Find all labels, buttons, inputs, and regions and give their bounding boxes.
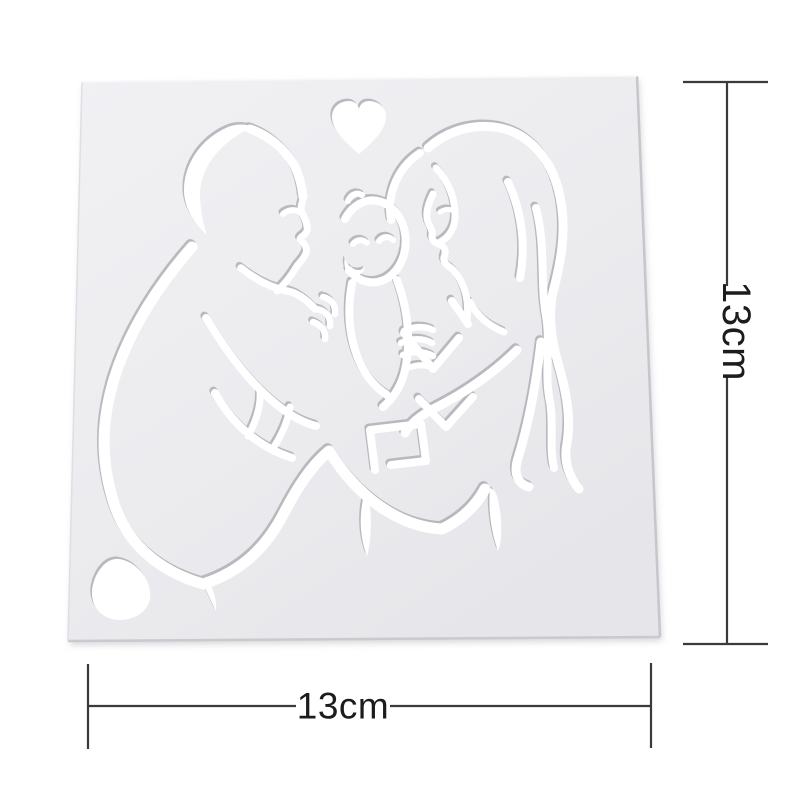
width-dimension-label: 13cm (297, 686, 389, 727)
height-dimension-label: 13cm (714, 281, 758, 381)
stencil-product-illustration: 13cm 13cm (0, 0, 800, 800)
product-photo: 13cm 13cm (0, 0, 800, 800)
